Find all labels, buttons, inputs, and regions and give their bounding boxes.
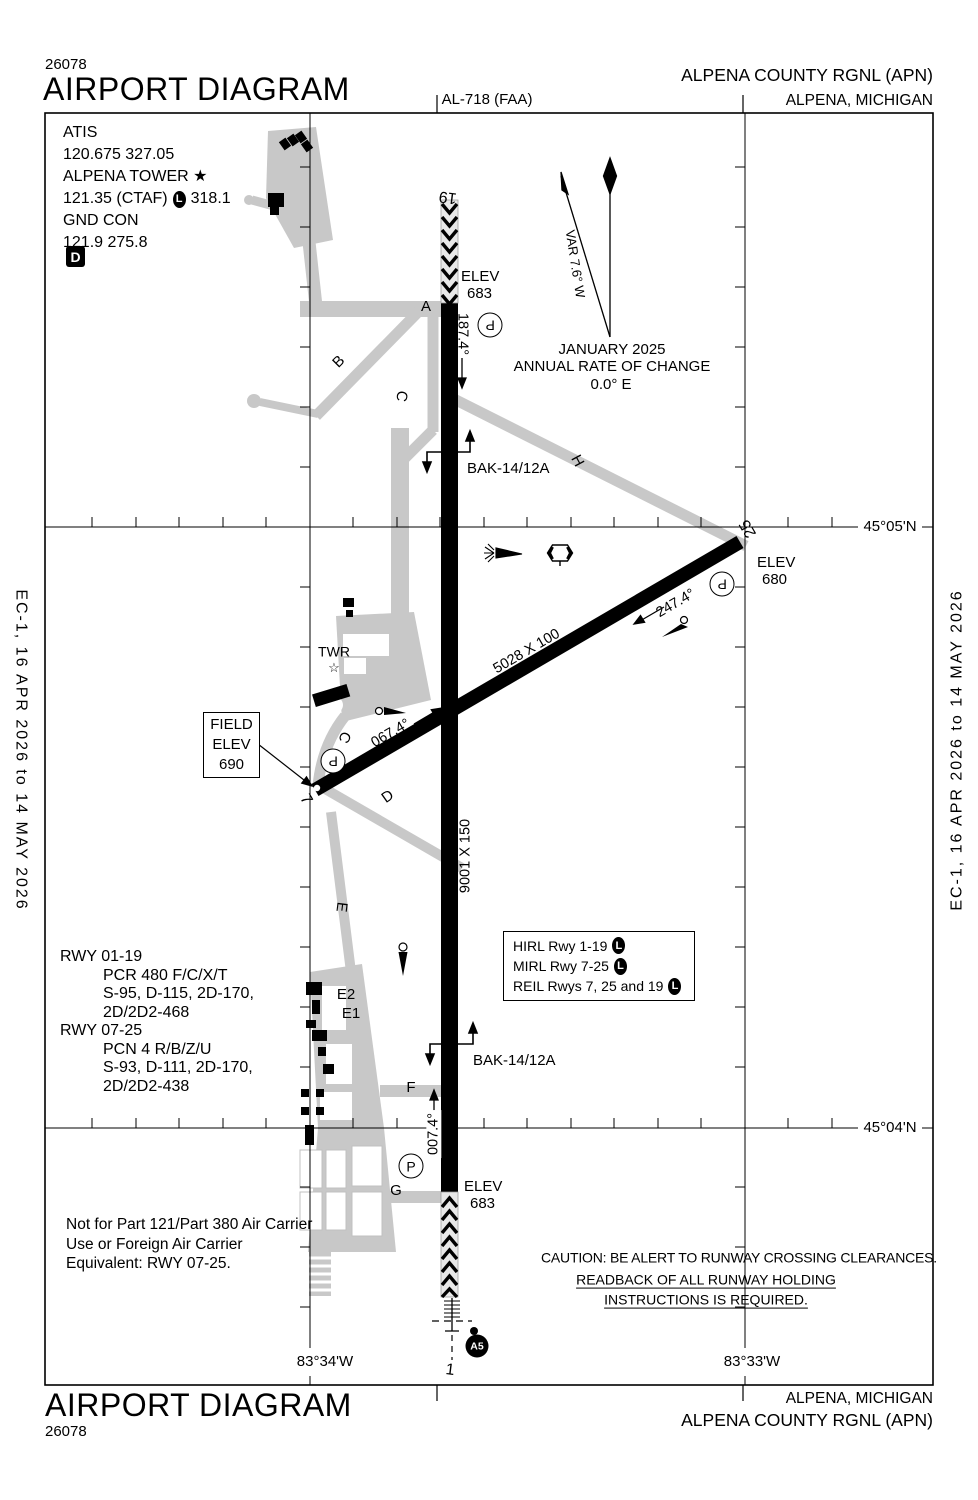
taxiway-label-e1: E1 — [342, 1006, 360, 1022]
pcl-icon-2: L — [614, 958, 627, 975]
caution-line1: CAUTION: BE ALERT TO RUNWAY CROSSING CLE… — [541, 1251, 937, 1266]
arresting-gear-north-label: BAK-14/12A — [467, 461, 550, 478]
lighting-line-2: MIRL Rwy 7-25L — [513, 958, 694, 975]
rwy-0725-weights1: S-93, D-111, 2D-170, — [60, 1059, 254, 1078]
field-elevation-box: FIELD ELEV 690 — [203, 712, 260, 778]
page-title-bottom: AIRPORT DIAGRAM — [45, 1388, 352, 1424]
field-elev-leader-arrow — [258, 744, 312, 786]
heading-arrow-19 — [458, 358, 466, 388]
atis-frequencies: 120.675 327.05 — [63, 144, 231, 166]
displaced-threshold-chevrons-1 — [441, 1192, 458, 1297]
pcl-icon-1: L — [612, 937, 625, 954]
chart-code-bottom: 26078 — [45, 1424, 87, 1441]
lighting-line-1: HIRL Rwy 1-19L — [513, 937, 694, 954]
taxiway-label-c-north: C — [392, 389, 410, 402]
effective-dates-left: EC-1, 16 APR 2026 to 14 MAY 2026 — [12, 589, 29, 910]
annual-rate-label: ANNUAL RATE OF CHANGE — [514, 359, 711, 375]
runway-19-heading: 187.4° — [454, 313, 469, 355]
arresting-gear-south-label: BAK-14/12A — [473, 1053, 556, 1070]
carrier-note-line1: Not for Part 121/Part 380 Air Carrier — [66, 1215, 312, 1235]
elevation-1: ELEV683 — [464, 1179, 502, 1213]
carrier-note-line3: Equivalent: RWY 07-25. — [66, 1254, 312, 1274]
variation-date: JANUARY 2025 — [558, 342, 665, 358]
caution-line3: INSTRUCTIONS IS REQUIRED. — [604, 1293, 808, 1308]
chart-ref: AL-718 (FAA) — [442, 92, 533, 108]
elevation-25: ELEV680 — [757, 555, 795, 589]
longitude-label-east: 83°33'W — [721, 1354, 783, 1370]
rwy-0119-title: RWY 01-19 — [60, 948, 254, 967]
field-elev-value: 690 — [204, 755, 259, 775]
rwy-0119-weights1: S-95, D-115, 2D-170, — [60, 985, 254, 1004]
ground-label: GND CON — [63, 210, 231, 232]
airport-city-bottom: ALPENA, MICHIGAN — [786, 1390, 933, 1407]
rwy-0119-pcr: PCR 480 F/C/X/T — [60, 967, 254, 986]
latitude-label-south: 45°04'N — [860, 1120, 919, 1136]
field-elev-line1: FIELD — [204, 715, 259, 735]
taxiway-label-e2: E2 — [337, 987, 355, 1003]
ground-frequencies: 121.9 275.8 — [63, 232, 231, 254]
airport-name-bottom: ALPENA COUNTY RGNL (APN) — [681, 1411, 933, 1431]
carrier-note-line2: Use or Foreign Air Carrier — [66, 1235, 312, 1255]
tower-label: ALPENA TOWER ★ — [63, 166, 231, 188]
field-elev-line2: ELEV — [204, 735, 259, 755]
tower-site-label: TWR — [318, 645, 350, 660]
approach-light-beacon-icon — [484, 544, 522, 562]
pilot-controlled-lighting-icon: L — [173, 191, 186, 208]
runway-1-heading: 007.4° — [426, 1110, 441, 1158]
runway-lighting-box: HIRL Rwy 1-19L MIRL Rwy 7-25L REIL Rwys … — [503, 931, 695, 1001]
parking-marker-4: P — [399, 1154, 424, 1179]
airport-city-top: ALPENA, MICHIGAN — [786, 92, 933, 109]
rwy-0725-weights2: 2D/2D2-438 — [60, 1078, 254, 1097]
displaced-threshold-chevrons-19 — [441, 200, 458, 304]
rwy-0119-weights2: 2D/2D2-468 — [60, 1004, 254, 1023]
runway-01-19-dimensions: 9001 X 150 — [458, 819, 473, 893]
annual-rate-value: 0.0° E — [590, 377, 631, 393]
wind-cone-icon-south — [399, 943, 408, 976]
d-atis-icon: D — [66, 246, 85, 267]
longitude-label-west: 83°34'W — [294, 1354, 356, 1370]
runway-01-19 — [441, 303, 458, 1192]
tower-star-icon: ★ — [193, 168, 207, 185]
rwy-0725-title: RWY 07-25 — [60, 1022, 254, 1041]
airport-diagram-page: 26078 AIRPORT DIAGRAM AL-718 (FAA) ALPEN… — [0, 0, 978, 1500]
taxiway-label-g: G — [390, 1183, 402, 1199]
parking-marker-1: P — [478, 313, 503, 338]
latitude-label-north: 45°05'N — [860, 519, 919, 535]
frequency-block: ATIS 120.675 327.05 ALPENA TOWER ★ 121.3… — [63, 122, 231, 254]
runway-data-block: RWY 01-19 PCR 480 F/C/X/T S-95, D-115, 2… — [60, 948, 254, 1096]
north-arrow-icon — [604, 158, 617, 337]
parking-marker-3: P — [321, 749, 346, 774]
rwy-0725-pcn: PCN 4 R/B/Z/U — [60, 1041, 254, 1060]
parking-marker-2: P — [710, 572, 735, 597]
tower-frequencies: 121.35 (CTAF) L 318.1 — [63, 188, 231, 210]
page-title: AIRPORT DIAGRAM — [43, 72, 350, 108]
approach-light-system-badge: A5 — [466, 1335, 489, 1358]
caution-line2: READBACK OF ALL RUNWAY HOLDING — [576, 1273, 836, 1288]
atis-label: ATIS — [63, 122, 231, 144]
runway-end-number-19: 19 — [438, 187, 458, 206]
taxiway-label-a: A — [421, 299, 431, 315]
lighting-line-3: REIL Rwys 7, 25 and 19L — [513, 978, 694, 995]
airport-name-top: ALPENA COUNTY RGNL (APN) — [681, 66, 933, 86]
air-carrier-note: Not for Part 121/Part 380 Air Carrier Us… — [66, 1215, 312, 1274]
taxiway-label-e: E — [333, 901, 350, 913]
wind-cone-icon-25 — [662, 617, 688, 638]
beacon-icon — [548, 545, 573, 566]
elevation-19: ELEV683 — [461, 269, 499, 303]
effective-dates-right: EC-1, 16 APR 2026 to 14 MAY 2026 — [950, 589, 967, 910]
taxiway-label-f: F — [406, 1080, 415, 1096]
pcl-icon-3: L — [668, 978, 681, 995]
tower-star-symbol: ☆ — [328, 661, 340, 675]
